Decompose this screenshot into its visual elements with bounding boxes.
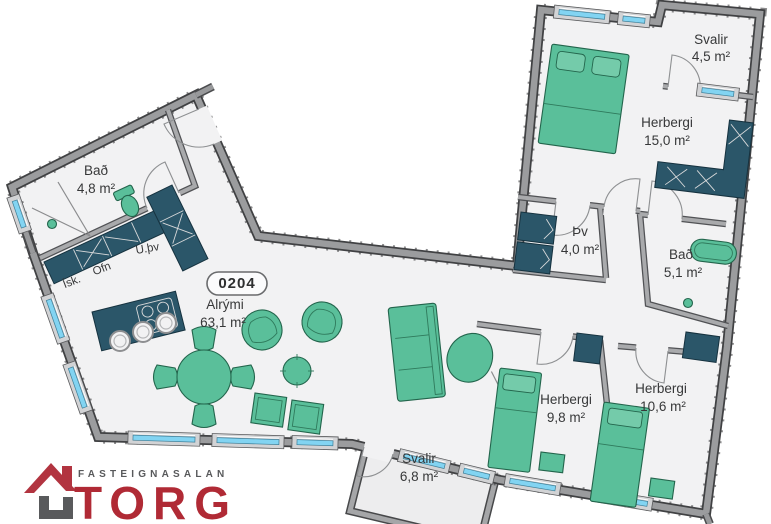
room-area-alrymi: 63,1 m² [200,315,246,330]
room-area-bad-51: 5,1 m² [664,265,703,280]
room-label-bad-51: Bað [669,247,693,262]
wardrobe [682,332,719,362]
room-label-alrymi: Alrými [206,297,244,312]
logo-brand: TORG [74,477,238,524]
floor-plan-canvas: Bað 4,8 m² Svalir 4,5 m² Herbergi 15,0 m… [0,0,771,524]
pouf [251,393,287,427]
room-area-herbergi-98: 9,8 m² [547,410,586,425]
nightstand [539,452,565,473]
room-label-herbergi-98: Herbergi [540,392,592,407]
room-area-herbergi-15: 15,0 m² [644,133,690,148]
room-area-svalir-top: 4,5 m² [692,49,731,64]
logo: FASTEIGNASALAN TORG [24,463,238,524]
nightstand [648,478,674,499]
room-area-herbergi-106: 10,6 m² [640,399,686,414]
room-label-svalir-top: Svalir [694,32,728,47]
sofa [388,303,446,402]
logo-house-body-icon [39,496,73,519]
double-bed [538,44,629,154]
wardrobe [574,333,603,364]
room-label-thv: Þv [572,224,588,239]
room-label-bad-small: Bað [84,163,108,178]
unit-badge: 0204 [207,272,267,295]
unit-badge-number: 0204 [218,275,255,292]
room-area-svalir-bottom: 6,8 m² [400,469,439,484]
room-label-herbergi-15: Herbergi [641,115,693,130]
room-area-bad-small: 4,8 m² [77,181,116,196]
bath-sink [684,299,693,308]
pouf [288,400,324,434]
room-label-herbergi-106: Herbergi [635,381,687,396]
room-label-svalir-bottom: Svalir [402,451,436,466]
floor-plan-page: Bað 4,8 m² Svalir 4,5 m² Herbergi 15,0 m… [0,0,771,524]
shower-drain [48,220,57,229]
room-area-thv: 4,0 m² [561,242,600,257]
logo-house-roof-icon [24,463,77,493]
